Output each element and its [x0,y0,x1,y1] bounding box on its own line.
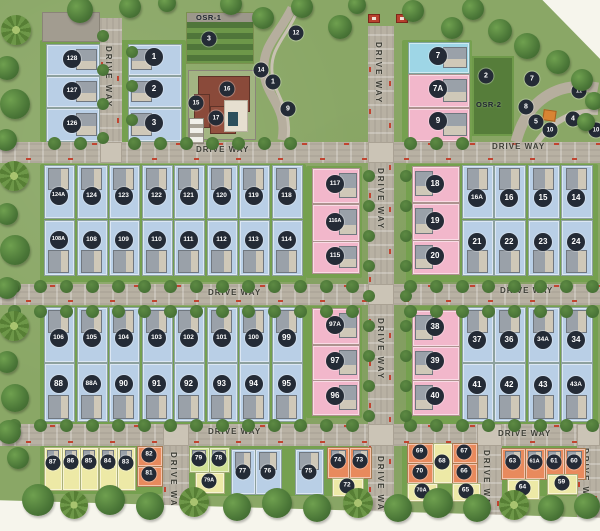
bush-icon [294,305,307,318]
bush-icon [164,280,177,293]
house-icon [81,250,102,273]
driveway-label: DRIVE WAY [169,452,178,514]
bush-icon [242,280,255,293]
plot-number: 124A [50,187,68,205]
driveway-label: DRIVE WAY [376,318,385,380]
bush-icon [400,290,412,302]
tree-icon [585,92,600,110]
bush-icon [320,280,333,293]
plot-number: 100 [245,329,263,347]
house-icon [467,250,489,273]
plot-number: 79A [202,474,217,489]
road-crossing [100,142,122,163]
house-icon [48,250,69,273]
bush-icon [97,64,109,76]
bush-icon [430,280,443,293]
bush-icon [430,419,443,432]
amenity-marker-8: 8 [519,100,534,115]
bush-icon [346,280,359,293]
bush-icon [363,230,375,242]
plot-number: 21 [468,233,486,251]
plot-number: 9 [429,112,447,130]
plot-number: 87 [45,456,60,471]
bush-icon [346,305,359,318]
bush-icon [346,419,359,432]
plot-number: 43A [567,376,585,394]
bush-icon [126,46,138,58]
plot-number: 16A [468,189,486,207]
bush-icon [586,280,599,293]
house-icon [566,395,588,419]
bush-icon [560,419,573,432]
tree-icon [538,495,564,521]
bush-icon [126,114,138,126]
plot-number: 113 [245,231,263,249]
tree-icon [158,0,176,12]
plot-number: 76 [260,465,275,480]
plot-number: 37 [468,331,486,349]
plot-number: 36 [500,331,518,349]
bush-icon [363,410,375,422]
plot-number: 126 [63,115,81,133]
palm-tree-icon [343,488,373,518]
tree-icon [488,19,512,43]
bush-icon [268,419,281,432]
bush-icon [320,305,333,318]
house-icon [443,113,467,136]
plot-number: 97A [326,316,344,334]
bush-icon [216,419,229,432]
bush-icon [112,280,125,293]
palm-tree-icon [60,491,88,519]
tree-icon [95,485,125,515]
driveway-label: DRIVE WAY [492,142,545,151]
osr1-label: OSR-1 [196,13,221,22]
bush-icon [363,380,375,392]
house-icon [243,250,264,273]
plot-number: 22 [500,233,518,251]
bush-icon [216,280,229,293]
bush-icon [400,230,412,242]
amenity-marker-5: 5 [529,115,544,130]
bush-icon [456,305,469,318]
house-icon [81,395,102,419]
house-icon [467,168,489,190]
bush-icon [294,280,307,293]
plot-number: 40 [426,387,444,405]
plot-number: 88 [50,375,68,393]
bush-icon [430,305,443,318]
plot-number: 85 [81,455,96,470]
bush-icon [363,350,375,362]
plot-number: 34A [534,331,552,349]
plot-number: 20 [426,247,444,265]
house-icon [499,395,521,419]
plot-number: 101 [213,329,231,347]
bush-icon [138,280,151,293]
house-icon [566,250,588,273]
bush-icon [456,137,469,150]
park-hut-icon [542,109,556,122]
plot-number: 2 [145,80,163,98]
palm-tree-icon [0,161,29,191]
plot-number: 111 [180,231,198,249]
bush-icon [400,170,412,182]
amenity-marker-1: 1 [266,75,281,90]
plot-number: 84 [100,455,115,470]
plot-number: 3 [145,114,163,132]
tree-icon [7,447,29,469]
amenity-marker-12: 12 [289,26,304,41]
bush-icon [112,305,125,318]
bush-icon [97,30,109,42]
plot-number: 127 [63,82,81,100]
plot-number: 43 [534,376,552,394]
tree-icon [0,56,19,80]
amenity-marker-9: 9 [281,102,296,117]
amenity-marker-7: 7 [525,72,540,87]
bush-icon [482,305,495,318]
plot-number: 19 [426,212,444,230]
site-master-plan: OSR-1 OSR-2 DRIVE WAYDRIVE WAYDRIVE WAYD… [0,0,600,531]
bush-icon [128,137,141,150]
house-icon [48,395,69,419]
palm-tree-icon [499,490,529,520]
plot-number: 15 [534,189,552,207]
bush-icon [400,260,412,272]
plot-number: 122 [148,187,166,205]
tree-icon [514,33,540,59]
bush-icon [400,410,412,422]
plot-number: 38 [426,318,444,336]
plot-number: 34 [567,331,585,349]
plot-number: 7 [429,47,447,65]
plot-number: 121 [180,187,198,205]
driveway-label: DRIVE WAY [374,42,383,104]
plot-number: 97 [326,352,344,370]
bush-icon [258,137,271,150]
plot-number: 77 [235,465,250,480]
bush-icon [363,260,375,272]
bush-icon [363,290,375,302]
bush-icon [60,419,73,432]
bush-icon [456,419,469,432]
plot-number: 103 [148,329,166,347]
tree-icon [136,492,164,520]
bush-icon [400,350,412,362]
house-icon [276,250,297,273]
bush-icon [232,137,245,150]
plot-number: 102 [180,329,198,347]
tree-icon [463,494,491,522]
amenity-marker-2: 2 [479,69,494,84]
tree-icon [571,69,593,91]
bush-icon [404,305,417,318]
bush-icon [430,137,443,150]
plot-number: 60 [567,455,582,470]
bush-icon [534,305,547,318]
palm-tree-icon [1,15,31,45]
plot-number: 83 [118,456,133,471]
house-icon [146,395,167,419]
bush-icon [34,280,47,293]
plot-number: 79 [191,452,206,467]
osr2-label: OSR-2 [476,100,501,109]
plot-number: 90 [115,375,133,393]
bush-icon [534,419,547,432]
tree-icon [0,203,18,225]
house-icon [566,168,588,190]
bush-icon [34,419,47,432]
bush-icon [112,419,125,432]
bush-icon [164,419,177,432]
plot-number: 24 [567,233,585,251]
plot-number: 114 [278,231,296,249]
bush-icon [190,280,203,293]
bush-icon [86,305,99,318]
plot-number: 123 [115,187,133,205]
bush-icon [268,305,281,318]
plot-number: 18 [426,175,444,193]
bush-icon [560,280,573,293]
house-icon [533,168,555,190]
bush-icon [60,305,73,318]
plot-number: 81 [142,467,157,482]
tree-icon [348,0,366,14]
house-icon [467,395,489,419]
bush-icon [48,137,61,150]
bush-icon [180,137,193,150]
house-icon [533,395,555,419]
house-icon [178,250,199,273]
plot-number: 16 [500,189,518,207]
bush-icon [508,305,521,318]
bush-icon [404,137,417,150]
plot-number: 63 [505,455,520,470]
plot-number: 118 [278,187,296,205]
house-icon [276,395,297,419]
tree-icon [0,235,30,265]
tree-icon [22,484,54,516]
amenity-marker-14: 14 [254,63,269,78]
tree-icon [462,0,484,20]
house-icon [211,250,232,273]
bush-icon [268,280,281,293]
plot-number: 69 [412,445,427,460]
tree-icon [546,50,570,74]
house-icon [113,395,134,419]
house-icon [211,395,232,419]
tree-icon [577,113,595,131]
tree-icon [574,493,600,519]
driveway-label: DRIVE WAY [376,168,385,230]
plot-number: 88A [83,375,101,393]
plot-number: 93 [213,375,231,393]
plot-number: 108A [50,231,68,249]
plot-number: 66 [457,465,472,480]
swimming-pool [228,112,238,126]
plot-number: 94 [245,375,263,393]
road-crossing [368,142,394,163]
bush-icon [206,137,219,150]
bush-icon [284,137,297,150]
plot-number: 78 [211,452,226,467]
tree-icon [303,494,331,522]
tree-icon [223,493,251,521]
house-icon [499,250,521,273]
plot-number: 23 [534,233,552,251]
plot-number: 91 [148,375,166,393]
plot-number: 99 [278,329,296,347]
tree-icon [119,0,141,18]
amenity-marker-3: 3 [202,32,217,47]
plot-number: 14 [567,189,585,207]
tree-icon [402,0,424,22]
plot-number: 42 [500,376,518,394]
plot-number: 124 [83,187,101,205]
bush-icon [586,305,599,318]
bush-icon [242,419,255,432]
plot-number: 110 [148,231,166,249]
bush-icon [294,419,307,432]
road-crossing [368,424,394,446]
bush-icon [320,419,333,432]
bush-icon [508,419,521,432]
plot-number: 117 [326,175,344,193]
tree-icon [328,15,352,39]
house-icon [499,168,521,190]
bush-icon [400,320,412,332]
plot-number: 120 [213,187,231,205]
plot-number: 67 [457,445,472,460]
plot-number: 61A [527,455,542,470]
plot-number: 1 [145,48,163,66]
bush-icon [138,419,151,432]
house-icon [243,395,264,419]
amenity-marker-16: 16 [220,82,235,97]
plot-number: 105 [83,329,101,347]
bush-icon [363,320,375,332]
plot-number: 7A [429,80,447,98]
bush-icon [86,280,99,293]
tree-icon [0,89,30,119]
bush-icon [400,380,412,392]
plot-number: 59 [554,476,569,491]
plot-number: 119 [245,187,263,205]
plot-number: 73 [352,454,367,469]
plot-number: 108 [83,231,101,249]
entry-gate-icon [368,14,380,23]
bush-icon [74,137,87,150]
plot-number: 68 [435,455,450,470]
plot-number: 109 [115,231,133,249]
plot-number: 74 [330,454,345,469]
palm-tree-icon [0,311,29,341]
plot-number: 86 [63,455,78,470]
amenity-marker-10: 10 [543,123,558,138]
house-icon [533,250,555,273]
plot-number: 106 [50,329,68,347]
bush-icon [97,98,109,110]
bush-icon [560,305,573,318]
plot-number: 115 [326,247,344,265]
tree-icon [384,494,412,522]
plot-number: 112 [213,231,231,249]
house-icon [146,250,167,273]
bush-icon [456,280,469,293]
plot-number: 41 [468,376,486,394]
bush-icon [482,280,495,293]
bush-icon [60,280,73,293]
bush-icon [190,305,203,318]
tree-icon [1,384,29,412]
bush-icon [138,305,151,318]
plot-number: 82 [142,448,157,463]
tree-icon [423,488,453,518]
plot-number: 95 [278,375,296,393]
plot-number: 70 [412,465,427,480]
bush-icon [400,200,412,212]
tree-icon [0,351,18,373]
bush-icon [216,305,229,318]
bush-icon [190,419,203,432]
bush-icon [586,419,599,432]
bush-icon [508,280,521,293]
plot-number: 92 [180,375,198,393]
bush-icon [363,170,375,182]
plot-number: 75 [301,465,316,480]
house-icon [113,250,134,273]
tree-icon [441,17,463,39]
plot-number: 104 [115,329,133,347]
tree-icon [262,488,292,518]
bush-icon [34,305,47,318]
amenity-marker-15: 15 [189,96,204,111]
bush-icon [154,137,167,150]
plot-number: 39 [426,352,444,370]
bush-icon [164,305,177,318]
bush-icon [363,200,375,212]
plot-number: 116A [326,213,344,231]
bush-icon [482,419,495,432]
plot-number: 96 [326,387,344,405]
plot-number: 61 [547,455,562,470]
bush-icon [126,80,138,92]
palm-tree-icon [179,487,209,517]
plot-number: 128 [63,50,81,68]
amenity-marker-17: 17 [209,111,224,126]
bush-icon [534,280,547,293]
bush-icon [242,305,255,318]
bush-icon [86,419,99,432]
house-icon [178,395,199,419]
tree-icon [252,7,274,29]
bush-icon [97,132,109,144]
